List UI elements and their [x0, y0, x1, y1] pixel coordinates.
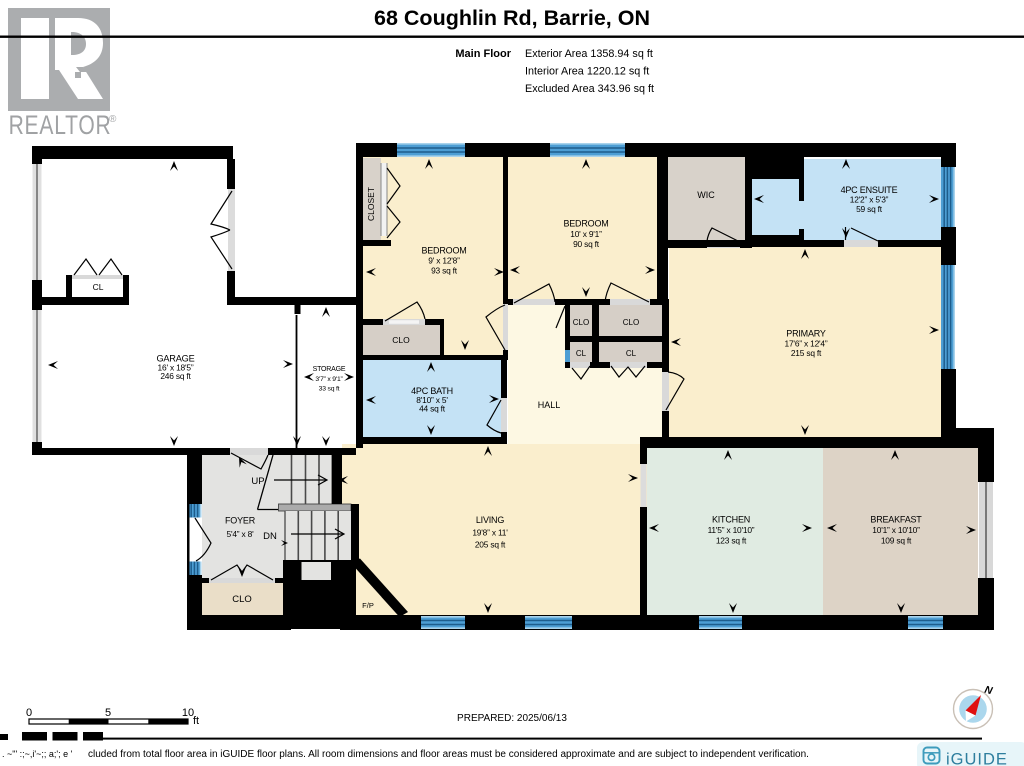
svg-text:12'2” x 5'3”: 12'2” x 5'3”	[850, 195, 889, 205]
svg-text:CLO: CLO	[623, 318, 639, 327]
svg-text:PRIMARY: PRIMARY	[786, 329, 826, 339]
svg-text:cluded from total floor area i: cluded from total floor area in iGUIDE f…	[88, 749, 809, 760]
svg-text:10'1” x 10'10”: 10'1” x 10'10”	[872, 525, 920, 535]
svg-text:17'6” x 12'4”: 17'6” x 12'4”	[785, 338, 828, 348]
svg-text:CL: CL	[576, 349, 587, 358]
svg-text:CL: CL	[626, 349, 637, 358]
svg-text:93 sq ft: 93 sq ft	[431, 266, 458, 276]
svg-text:59 sq ft: 59 sq ft	[856, 204, 883, 214]
svg-text:CLOSET: CLOSET	[366, 187, 376, 221]
svg-text:3'7” x 9'1”: 3'7” x 9'1”	[315, 376, 343, 383]
svg-text:UP: UP	[251, 476, 264, 487]
svg-text:STORAGE: STORAGE	[313, 366, 346, 373]
svg-text:HALL: HALL	[538, 400, 561, 410]
svg-text:19'8” x 11': 19'8” x 11'	[472, 527, 508, 537]
svg-text:68 Coughlin Rd, Barrie, ON: 68 Coughlin Rd, Barrie, ON	[374, 6, 650, 30]
svg-text:4PC ENSUITE: 4PC ENSUITE	[841, 185, 898, 195]
svg-text:5'4” x 8': 5'4” x 8'	[226, 529, 254, 539]
svg-text:205 sq ft: 205 sq ft	[475, 540, 506, 550]
svg-text:WIC: WIC	[697, 190, 715, 200]
svg-text:246 sq ft: 246 sq ft	[160, 371, 191, 381]
svg-text:DN: DN	[263, 531, 277, 542]
svg-text:®: ®	[109, 114, 117, 125]
svg-text:BEDROOM: BEDROOM	[563, 219, 608, 229]
svg-text:BREAKFAST: BREAKFAST	[870, 515, 922, 525]
svg-text:F/P: F/P	[362, 601, 374, 610]
svg-text:FOYER: FOYER	[225, 516, 256, 526]
svg-text:CL: CL	[93, 282, 104, 292]
svg-text:iGUIDE: iGUIDE	[946, 751, 1008, 766]
svg-text:CLO: CLO	[573, 318, 589, 327]
svg-text:REALTOR: REALTOR	[9, 111, 112, 141]
svg-text:0: 0	[26, 707, 32, 719]
svg-text:9' x 12'8”: 9' x 12'8”	[428, 256, 460, 266]
svg-text:ft: ft	[193, 715, 199, 727]
svg-text:44 sq ft: 44 sq ft	[419, 404, 446, 414]
svg-text:CLO: CLO	[392, 335, 410, 345]
svg-text:5: 5	[105, 707, 111, 719]
svg-text:CLO: CLO	[232, 594, 252, 605]
svg-text:BEDROOM: BEDROOM	[421, 246, 466, 256]
svg-text:KITCHEN: KITCHEN	[712, 515, 750, 525]
svg-text:Excluded Area 343.96 sq ft: Excluded Area 343.96 sq ft	[525, 83, 654, 95]
svg-text:Main Floor: Main Floor	[455, 48, 511, 60]
svg-text:90 sq ft: 90 sq ft	[573, 239, 600, 249]
svg-text:Interior Area 1220.12 sq ft: Interior Area 1220.12 sq ft	[525, 66, 649, 78]
svg-text:109 sq ft: 109 sq ft	[881, 536, 912, 546]
svg-text:PREPARED: 2025/06/13: PREPARED: 2025/06/13	[457, 713, 567, 724]
svg-text:123 sq ft: 123 sq ft	[716, 536, 747, 546]
svg-text:LIVING: LIVING	[476, 515, 505, 525]
svg-text:215 sq ft: 215 sq ft	[791, 348, 822, 358]
svg-text:33 sq ft: 33 sq ft	[319, 386, 340, 393]
svg-text:Exterior Area 1358.94 sq ft: Exterior Area 1358.94 sq ft	[525, 48, 653, 60]
svg-text:11'5” x 10'10”: 11'5” x 10'10”	[708, 525, 755, 535]
svg-text:10' x 9'1”: 10' x 9'1”	[570, 229, 602, 239]
svg-text:. ~"' :;~,i'~;; a;'; e ': . ~"' :;~,i'~;; a;'; e '	[2, 749, 73, 759]
